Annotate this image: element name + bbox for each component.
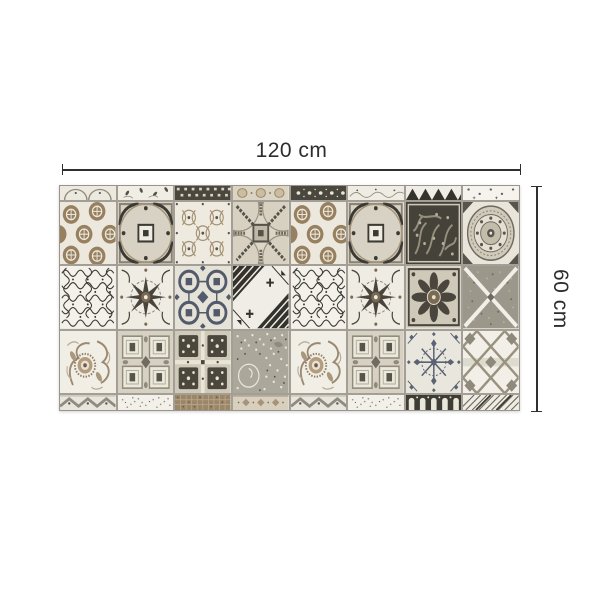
rug-tile-filigree-dense xyxy=(291,266,347,328)
rug-tile-flower-dark xyxy=(406,266,462,328)
height-dimension-tick-top xyxy=(531,186,542,188)
rug-tile-ornament-beige xyxy=(233,395,289,410)
rug-tile-zigzag-grey xyxy=(60,395,116,410)
rug-tile-compass-circle xyxy=(233,202,289,264)
rug-tile-stripes-diagonal xyxy=(463,395,519,410)
rug-tile-coffer-grid xyxy=(118,331,174,393)
rug-tile-arc-light xyxy=(60,186,116,200)
rug-tile-trellis-moroccan xyxy=(463,331,519,393)
rug-tile-crenel-dark xyxy=(406,395,462,410)
rug-tile-cross-grey xyxy=(463,266,519,328)
width-dimension-tick-left xyxy=(62,164,64,175)
height-dimension-tick-bottom xyxy=(531,411,542,413)
rug-tile-filigree-dense xyxy=(60,266,116,328)
rug xyxy=(59,185,520,411)
rug-tile-geo-diagonal xyxy=(233,266,289,328)
rug-tile-checker-floral xyxy=(175,331,231,393)
rug-tile-zigzag-grey xyxy=(291,395,347,410)
rug-tile-coffer-grid xyxy=(348,331,404,393)
rug-tile-baroque-swirl xyxy=(60,331,116,393)
rug-tile-damask-light xyxy=(348,186,404,200)
rug-tile-snowflake-steel xyxy=(406,331,462,393)
rug-tile-speckle-white xyxy=(348,395,404,410)
rug-tile-damask-dark xyxy=(406,202,462,264)
rug-tile-dotband-dark xyxy=(291,186,347,200)
rug-tile-baroque-swirl xyxy=(291,331,347,393)
rug-tile-millefleur-grey xyxy=(233,331,289,393)
rug-tile-leaf-light xyxy=(118,186,174,200)
rug-tile-circle-beige xyxy=(233,186,289,200)
width-dimension-tick-right xyxy=(520,164,522,175)
rug-tile-medallion-square xyxy=(348,202,404,264)
rug-tile-chevron-dark xyxy=(406,186,462,200)
rug-tile-rosette-star xyxy=(118,266,174,328)
rug-tile-mosaic-brown xyxy=(175,395,231,410)
rug-tile-plate-medallion xyxy=(463,202,519,264)
rug-tile-circles-brown xyxy=(60,202,116,264)
rug-tile-lattice-light xyxy=(175,202,231,264)
height-dimension-line xyxy=(536,186,538,412)
height-dimension-label: 60 cm xyxy=(548,186,572,412)
rug-tile-rings-steel xyxy=(175,266,231,328)
width-dimension-line xyxy=(62,169,521,171)
rug-tile-checker-dark xyxy=(175,186,231,200)
width-dimension-label: 120 cm xyxy=(62,139,521,163)
rug-tile-medallion-square xyxy=(118,202,174,264)
product-dimension-image: 120 cm 60 cm xyxy=(0,0,600,600)
rug-tile-dot-white xyxy=(463,186,519,200)
rug-tile-circles-brown xyxy=(291,202,347,264)
rug-tile-speckle-white xyxy=(118,395,174,410)
rug-tile-rosette-star xyxy=(348,266,404,328)
